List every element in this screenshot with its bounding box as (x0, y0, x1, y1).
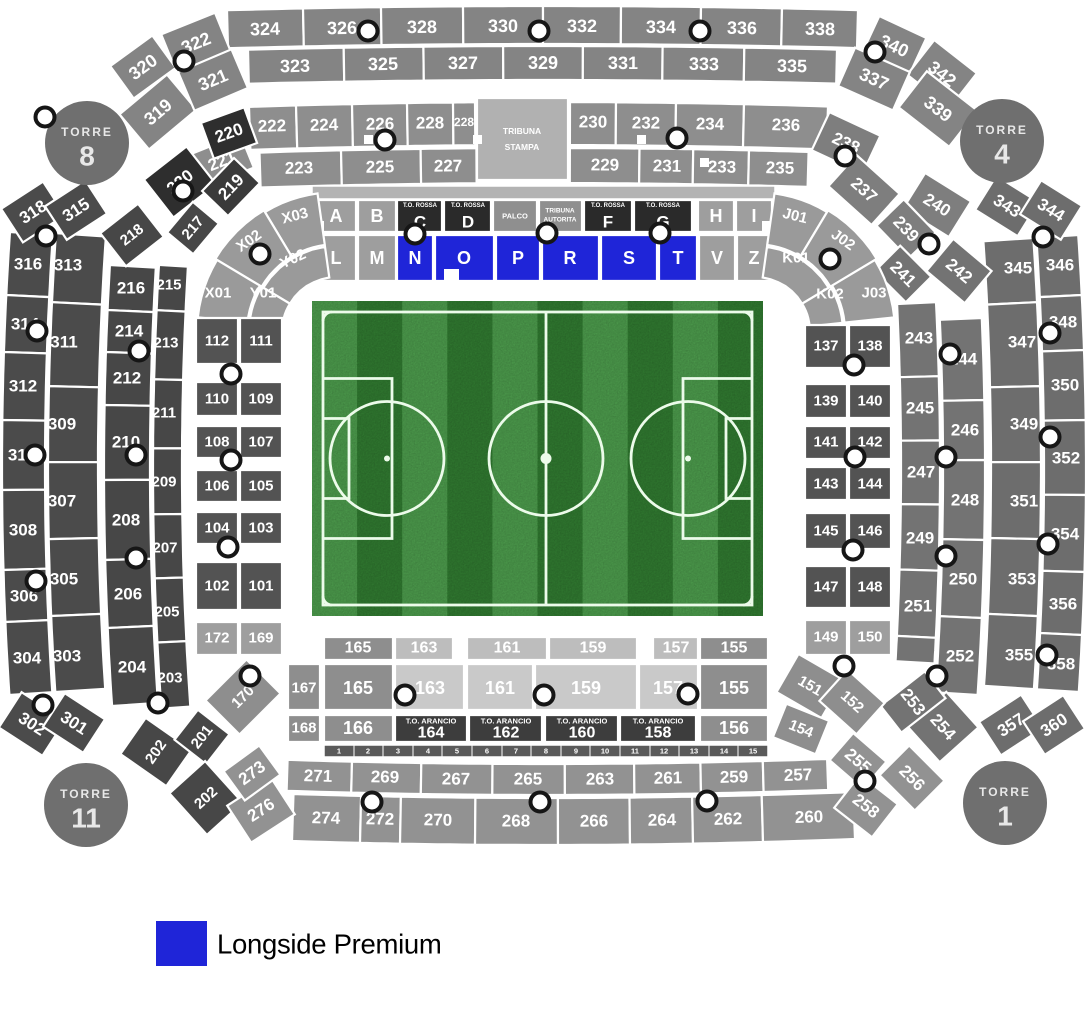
svg-text:167: 167 (291, 680, 316, 697)
svg-text:267: 267 (442, 769, 471, 788)
svg-text:251: 251 (904, 597, 932, 616)
svg-text:332: 332 (567, 16, 597, 36)
svg-text:105: 105 (248, 478, 273, 495)
svg-text:214: 214 (115, 322, 144, 341)
svg-text:V: V (711, 248, 723, 268)
svg-text:106: 106 (204, 478, 229, 495)
svg-text:163: 163 (415, 678, 445, 698)
svg-text:A: A (330, 206, 343, 226)
svg-text:2: 2 (366, 747, 370, 756)
svg-text:STAMPA: STAMPA (505, 142, 540, 152)
svg-text:316: 316 (14, 255, 42, 274)
svg-text:228: 228 (416, 113, 445, 132)
svg-text:14: 14 (720, 747, 729, 756)
svg-text:303: 303 (53, 647, 81, 666)
svg-text:15: 15 (749, 747, 757, 756)
svg-text:M: M (370, 248, 385, 268)
svg-text:328: 328 (407, 17, 437, 37)
svg-text:X01: X01 (205, 285, 232, 302)
svg-text:304: 304 (13, 649, 42, 668)
svg-text:F: F (603, 213, 613, 232)
svg-text:148: 148 (857, 579, 882, 596)
svg-text:203: 203 (157, 670, 182, 687)
svg-text:232: 232 (632, 113, 661, 132)
svg-text:112: 112 (205, 333, 229, 350)
svg-text:207: 207 (152, 540, 177, 557)
svg-text:L: L (331, 248, 342, 268)
svg-text:R: R (564, 248, 577, 268)
svg-text:205: 205 (154, 604, 179, 621)
svg-text:8: 8 (544, 747, 548, 756)
svg-text:352: 352 (1052, 449, 1080, 468)
svg-text:111: 111 (249, 333, 272, 350)
svg-text:11: 11 (631, 747, 639, 756)
svg-text:161: 161 (485, 678, 515, 698)
svg-text:157: 157 (663, 640, 690, 657)
svg-text:324: 324 (250, 19, 281, 40)
svg-text:I: I (751, 206, 756, 226)
svg-text:Y01: Y01 (250, 285, 277, 302)
svg-text:308: 308 (9, 521, 37, 540)
svg-text:330: 330 (488, 16, 518, 36)
svg-text:252: 252 (946, 647, 974, 666)
svg-text:J03: J03 (861, 285, 886, 302)
svg-text:311: 311 (50, 333, 77, 352)
svg-text:271: 271 (304, 766, 333, 786)
svg-text:333: 333 (689, 54, 719, 74)
svg-text:N: N (409, 248, 422, 268)
svg-text:351: 351 (1010, 492, 1038, 511)
svg-text:350: 350 (1051, 376, 1079, 395)
svg-text:TORRE: TORRE (976, 123, 1028, 137)
svg-text:224: 224 (310, 115, 339, 135)
svg-text:101: 101 (248, 578, 273, 595)
svg-text:247: 247 (907, 463, 935, 482)
svg-text:227: 227 (434, 156, 463, 175)
svg-text:160: 160 (569, 725, 596, 742)
svg-text:S: S (623, 248, 635, 268)
svg-text:149: 149 (813, 629, 838, 646)
svg-text:Longside Premium: Longside Premium (217, 929, 441, 960)
svg-text:161: 161 (494, 640, 521, 657)
svg-text:259: 259 (720, 767, 749, 787)
svg-text:270: 270 (424, 810, 453, 829)
svg-text:323: 323 (280, 56, 310, 77)
svg-text:355: 355 (1005, 646, 1033, 665)
svg-text:143: 143 (813, 476, 838, 493)
svg-text:345: 345 (1004, 259, 1032, 278)
svg-text:162: 162 (493, 725, 520, 742)
svg-text:230: 230 (579, 112, 607, 131)
svg-text:104: 104 (204, 520, 230, 537)
svg-text:209: 209 (151, 474, 176, 491)
svg-text:8: 8 (79, 141, 95, 172)
svg-text:163: 163 (411, 640, 438, 657)
svg-text:213: 213 (153, 335, 178, 352)
svg-text:168: 168 (291, 720, 316, 737)
svg-text:329: 329 (528, 53, 558, 73)
svg-text:349: 349 (1010, 415, 1038, 434)
svg-text:155: 155 (719, 678, 749, 698)
svg-text:13: 13 (690, 747, 698, 756)
svg-text:P: P (512, 248, 524, 268)
svg-text:260: 260 (795, 807, 824, 827)
svg-text:9: 9 (574, 747, 578, 756)
svg-text:PALCO: PALCO (502, 212, 528, 221)
svg-text:262: 262 (714, 809, 743, 829)
svg-text:T: T (673, 248, 684, 268)
svg-text:305: 305 (50, 570, 78, 589)
svg-text:312: 312 (9, 377, 37, 396)
svg-text:243: 243 (905, 329, 933, 348)
svg-text:108: 108 (204, 434, 229, 451)
svg-text:146: 146 (857, 523, 882, 540)
svg-text:TORRE: TORRE (61, 125, 113, 139)
svg-text:325: 325 (368, 54, 398, 74)
svg-text:172: 172 (204, 630, 229, 647)
svg-text:326: 326 (327, 18, 357, 39)
svg-text:265: 265 (514, 769, 542, 788)
svg-text:212: 212 (113, 369, 141, 388)
svg-text:TRIBUNA: TRIBUNA (545, 208, 575, 215)
svg-text:211: 211 (152, 405, 176, 422)
svg-text:216: 216 (117, 279, 145, 298)
svg-text:309: 309 (48, 415, 76, 434)
svg-text:264: 264 (648, 810, 677, 829)
svg-text:3: 3 (396, 747, 400, 756)
svg-text:11: 11 (71, 803, 101, 834)
svg-text:331: 331 (608, 53, 638, 73)
svg-text:263: 263 (586, 769, 615, 788)
svg-text:1: 1 (337, 747, 341, 756)
svg-text:T.O. ROSSA: T.O. ROSSA (403, 203, 438, 209)
svg-text:H: H (710, 206, 723, 226)
svg-text:266: 266 (580, 811, 608, 830)
svg-text:107: 107 (248, 434, 273, 451)
svg-text:274: 274 (312, 808, 341, 828)
svg-text:261: 261 (654, 768, 683, 787)
svg-text:137: 137 (813, 338, 838, 355)
svg-text:257: 257 (784, 765, 813, 785)
svg-text:164: 164 (418, 725, 445, 742)
svg-text:110: 110 (205, 391, 229, 408)
svg-text:K01: K01 (782, 250, 810, 267)
svg-text:335: 335 (777, 56, 807, 77)
svg-text:6: 6 (485, 747, 489, 756)
svg-text:Z: Z (749, 248, 760, 268)
svg-text:145: 145 (813, 523, 838, 540)
svg-text:165: 165 (345, 640, 372, 657)
svg-text:T.O. ROSSA: T.O. ROSSA (451, 203, 486, 209)
svg-text:208: 208 (112, 511, 140, 530)
svg-text:269: 269 (371, 767, 400, 787)
svg-text:150: 150 (857, 629, 882, 646)
svg-text:T.O. ROSSA: T.O. ROSSA (591, 203, 626, 209)
svg-text:250: 250 (949, 570, 977, 589)
svg-text:234: 234 (696, 114, 725, 134)
svg-text:10: 10 (601, 747, 609, 756)
svg-text:12: 12 (660, 747, 668, 756)
svg-text:327: 327 (448, 53, 478, 73)
svg-text:223: 223 (285, 158, 314, 178)
svg-text:K02: K02 (816, 286, 844, 303)
svg-text:156: 156 (719, 718, 749, 738)
svg-text:248: 248 (951, 491, 979, 510)
svg-text:346: 346 (1046, 256, 1074, 275)
svg-text:334: 334 (646, 17, 676, 37)
svg-text:204: 204 (118, 658, 147, 677)
svg-text:139: 139 (813, 393, 838, 410)
svg-text:144: 144 (857, 476, 883, 493)
svg-text:206: 206 (114, 585, 142, 604)
svg-text:B: B (371, 206, 384, 226)
svg-text:233: 233 (708, 157, 737, 177)
svg-text:313: 313 (54, 256, 82, 275)
svg-text:307: 307 (48, 492, 76, 511)
svg-text:155: 155 (721, 640, 748, 657)
svg-text:222: 222 (258, 116, 287, 136)
svg-text:4: 4 (994, 139, 1010, 170)
svg-text:225: 225 (366, 157, 395, 177)
svg-text:T.O. ROSSA: T.O. ROSSA (646, 203, 681, 209)
svg-text:229: 229 (591, 155, 620, 174)
svg-text:138: 138 (857, 338, 882, 355)
svg-text:158: 158 (645, 725, 672, 742)
svg-text:165: 165 (343, 678, 373, 698)
svg-text:338: 338 (805, 19, 835, 40)
svg-text:102: 102 (204, 578, 229, 595)
svg-text:246: 246 (951, 421, 979, 440)
svg-text:159: 159 (580, 640, 607, 657)
svg-text:D: D (462, 213, 474, 232)
svg-text:141: 141 (813, 434, 838, 451)
svg-text:356: 356 (1049, 595, 1077, 614)
svg-text:TRIBUNA: TRIBUNA (503, 126, 541, 136)
svg-text:336: 336 (727, 18, 757, 38)
svg-text:109: 109 (248, 391, 273, 408)
svg-text:169: 169 (248, 630, 273, 647)
svg-text:5: 5 (455, 747, 459, 756)
svg-text:228: 228 (454, 115, 474, 129)
svg-text:215: 215 (156, 277, 181, 294)
svg-text:245: 245 (906, 399, 934, 418)
svg-text:O: O (457, 248, 471, 268)
svg-text:147: 147 (813, 579, 838, 596)
svg-text:353: 353 (1008, 570, 1036, 589)
svg-text:1: 1 (997, 801, 1013, 832)
svg-text:268: 268 (502, 811, 530, 830)
svg-text:TORRE: TORRE (60, 787, 112, 801)
svg-text:249: 249 (906, 529, 934, 548)
svg-text:103: 103 (248, 520, 273, 537)
svg-text:231: 231 (653, 156, 682, 175)
svg-text:7: 7 (514, 747, 518, 756)
svg-text:347: 347 (1008, 333, 1036, 352)
svg-text:235: 235 (766, 158, 795, 178)
svg-text:140: 140 (857, 393, 882, 410)
svg-text:166: 166 (343, 718, 373, 738)
svg-text:236: 236 (772, 115, 801, 135)
svg-text:159: 159 (571, 678, 601, 698)
svg-text:TORRE: TORRE (979, 785, 1031, 799)
